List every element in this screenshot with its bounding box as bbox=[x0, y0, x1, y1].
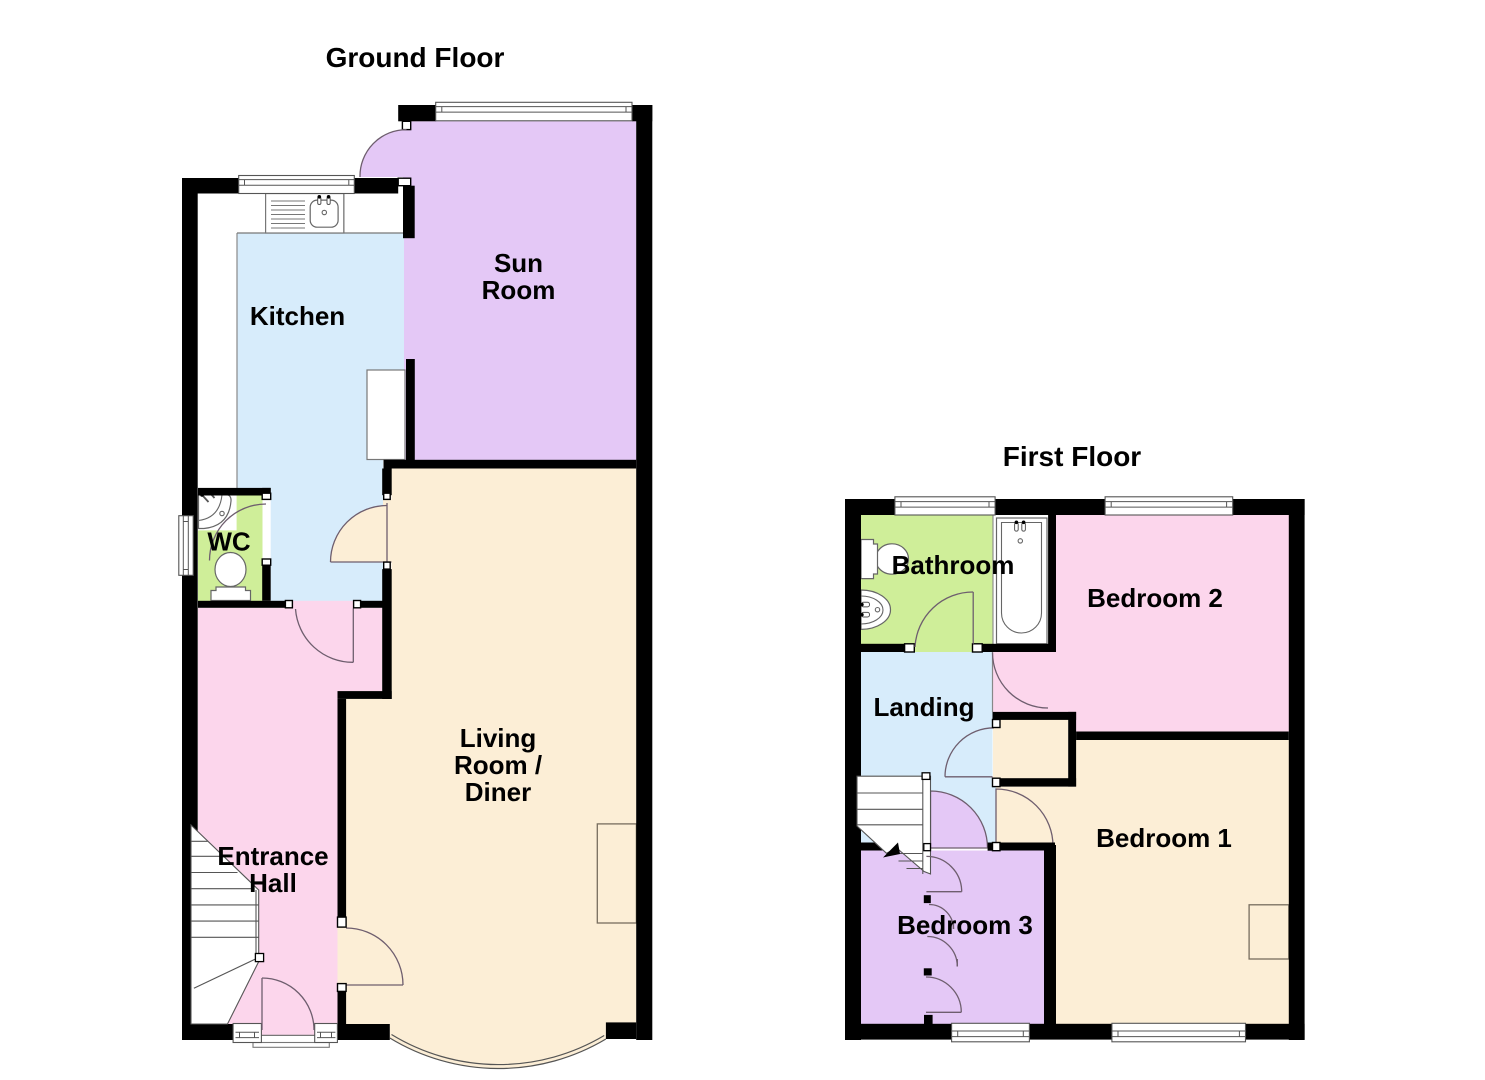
svg-text:Bedroom 2: Bedroom 2 bbox=[1087, 583, 1223, 613]
svg-text:Room /: Room / bbox=[454, 750, 542, 780]
svg-text:WC: WC bbox=[207, 527, 251, 557]
svg-text:Ground Floor: Ground Floor bbox=[326, 42, 505, 73]
svg-text:Sun: Sun bbox=[494, 248, 543, 278]
svg-text:Diner: Diner bbox=[465, 777, 531, 807]
svg-text:First Floor: First Floor bbox=[1003, 441, 1142, 472]
svg-text:Kitchen: Kitchen bbox=[250, 301, 345, 331]
svg-text:Hall: Hall bbox=[249, 868, 297, 898]
svg-text:Bedroom 3: Bedroom 3 bbox=[897, 910, 1033, 940]
svg-text:Room: Room bbox=[482, 275, 556, 305]
svg-text:Entrance: Entrance bbox=[217, 841, 328, 871]
svg-text:Landing: Landing bbox=[873, 692, 974, 722]
svg-text:Living: Living bbox=[460, 723, 537, 753]
svg-text:Bathroom: Bathroom bbox=[892, 550, 1015, 580]
svg-text:Bedroom 1: Bedroom 1 bbox=[1096, 823, 1232, 853]
